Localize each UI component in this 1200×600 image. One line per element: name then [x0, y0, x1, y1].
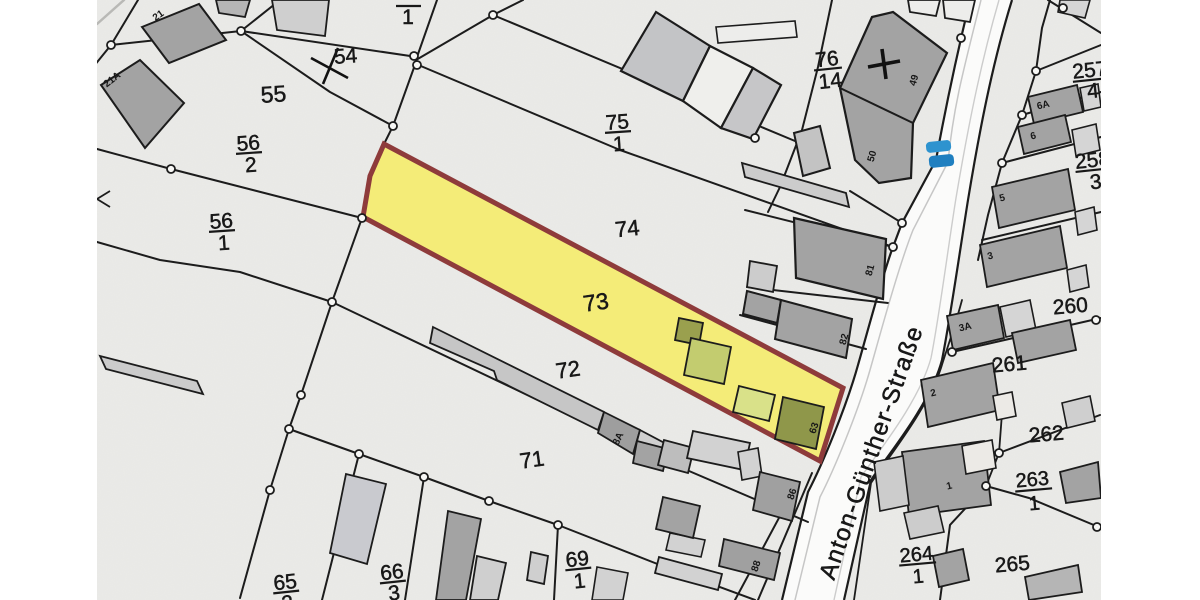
svg-text:262: 262 — [1028, 422, 1065, 448]
svg-text:74: 74 — [614, 215, 641, 242]
svg-text:1: 1 — [573, 569, 587, 593]
svg-text:265: 265 — [994, 552, 1031, 578]
svg-text:1: 1 — [612, 133, 625, 157]
svg-text:261: 261 — [991, 352, 1028, 378]
svg-text:1: 1 — [402, 6, 414, 29]
svg-text:72: 72 — [554, 355, 582, 383]
svg-text:3: 3 — [1089, 170, 1103, 194]
svg-text:2: 2 — [244, 154, 257, 178]
svg-text:1: 1 — [912, 566, 925, 589]
svg-text:71: 71 — [518, 445, 546, 473]
svg-text:54: 54 — [333, 44, 358, 69]
svg-text:260: 260 — [1052, 294, 1089, 320]
svg-text:73: 73 — [581, 287, 610, 316]
svg-text:55: 55 — [260, 80, 287, 108]
svg-text:1: 1 — [1028, 492, 1041, 515]
svg-text:1: 1 — [217, 232, 230, 256]
svg-text:14: 14 — [817, 69, 843, 94]
